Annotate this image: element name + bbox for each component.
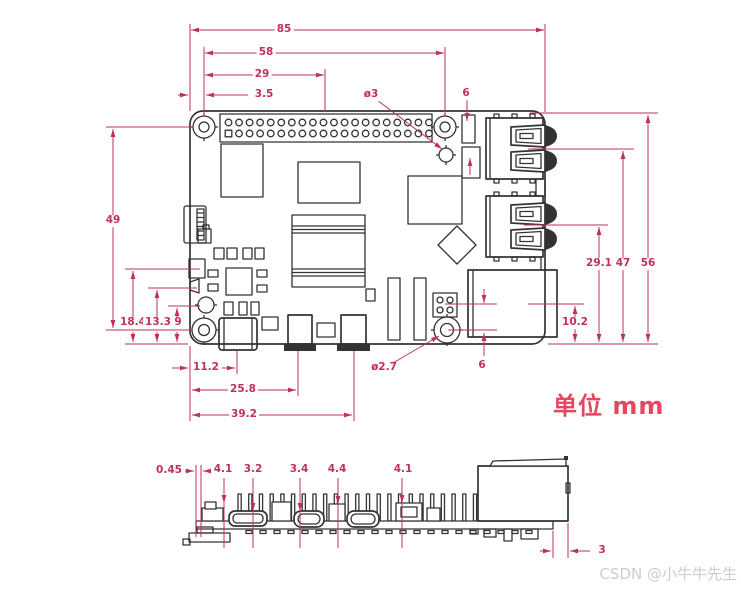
dim-label-hole-span: 58 bbox=[257, 47, 276, 59]
dim-label-29-1: 29.1 bbox=[584, 258, 614, 270]
small-component bbox=[317, 323, 335, 337]
component-slot-2 bbox=[462, 147, 480, 178]
dim-label-3-side: 3 bbox=[596, 545, 607, 557]
dim-label-25-8: 25.8 bbox=[228, 384, 258, 396]
pcb-outline bbox=[190, 111, 545, 344]
gpio-header bbox=[220, 114, 432, 142]
dim-label-0-45: 0.45 bbox=[154, 465, 184, 477]
chip-c-socket bbox=[292, 215, 365, 287]
unit-label: 单位 mm bbox=[553, 386, 664, 421]
dim-label-10-2: 10.2 bbox=[560, 317, 590, 329]
dim-label-hole-dia-2-7: ø2.7 bbox=[369, 362, 399, 374]
dim-label-9: 9 bbox=[172, 317, 183, 329]
chip-a bbox=[221, 144, 263, 197]
micro-hdmi-port-2 bbox=[337, 315, 370, 351]
chip-b bbox=[298, 162, 360, 203]
sd-card-side bbox=[183, 527, 230, 545]
usb-stack-lower bbox=[486, 192, 557, 270]
left-edge-components bbox=[189, 225, 267, 315]
dim-label-29: 29 bbox=[253, 69, 272, 81]
watermark: CSDN @小牛牛先生 bbox=[599, 563, 737, 584]
dim-label-3-2: 3.2 bbox=[242, 464, 265, 476]
dim-label-4-1-b: 4.1 bbox=[392, 464, 415, 476]
dim-label-13-3: 13.3 bbox=[143, 317, 173, 329]
connector-strip-1 bbox=[388, 278, 400, 340]
dim-label-4-1-a: 4.1 bbox=[212, 464, 235, 476]
dim-label-hole-dia: ø3 bbox=[362, 89, 381, 101]
mounting-hole-top-left bbox=[190, 113, 218, 141]
dim-label-3-4: 3.4 bbox=[288, 464, 311, 476]
dim-label-39-2: 39.2 bbox=[229, 409, 259, 421]
pcb-pad-array bbox=[246, 531, 532, 534]
pin-block-2x2 bbox=[433, 293, 457, 317]
mounting-hole-top-right bbox=[431, 113, 459, 141]
chip-d bbox=[408, 176, 462, 224]
dim-label-47: 47 bbox=[614, 258, 633, 270]
usb-ethernet-side-assembly bbox=[478, 456, 570, 521]
connector-strip-2 bbox=[414, 278, 426, 340]
gpio-pin-array bbox=[225, 119, 432, 137]
small-component bbox=[366, 289, 375, 301]
micro-hdmi-port-1 bbox=[284, 315, 316, 351]
dim-label-11-2: 11.2 bbox=[191, 362, 221, 374]
board-dimension-drawing: 85 58 29 3.5 ø3 6 49 18.4 13.3 9 29.1 47… bbox=[0, 0, 741, 589]
usb-stack-connector bbox=[536, 179, 545, 196]
dim-label-6-top: 6 bbox=[460, 88, 471, 100]
dim-label-4-4: 4.4 bbox=[326, 464, 349, 476]
small-hole-top-right bbox=[436, 145, 456, 165]
component-slot-1 bbox=[462, 115, 475, 143]
dim-label-56: 56 bbox=[639, 258, 658, 270]
usb-c-port bbox=[219, 318, 257, 350]
diamond-component bbox=[438, 226, 476, 264]
dim-label-6-bottom: 6 bbox=[476, 360, 487, 372]
small-component bbox=[262, 317, 278, 330]
dim-label-3-5: 3.5 bbox=[253, 89, 276, 101]
dim-label-49: 49 bbox=[104, 215, 123, 227]
dim-label-board-width: 85 bbox=[275, 24, 294, 36]
board-top-view bbox=[184, 111, 557, 351]
